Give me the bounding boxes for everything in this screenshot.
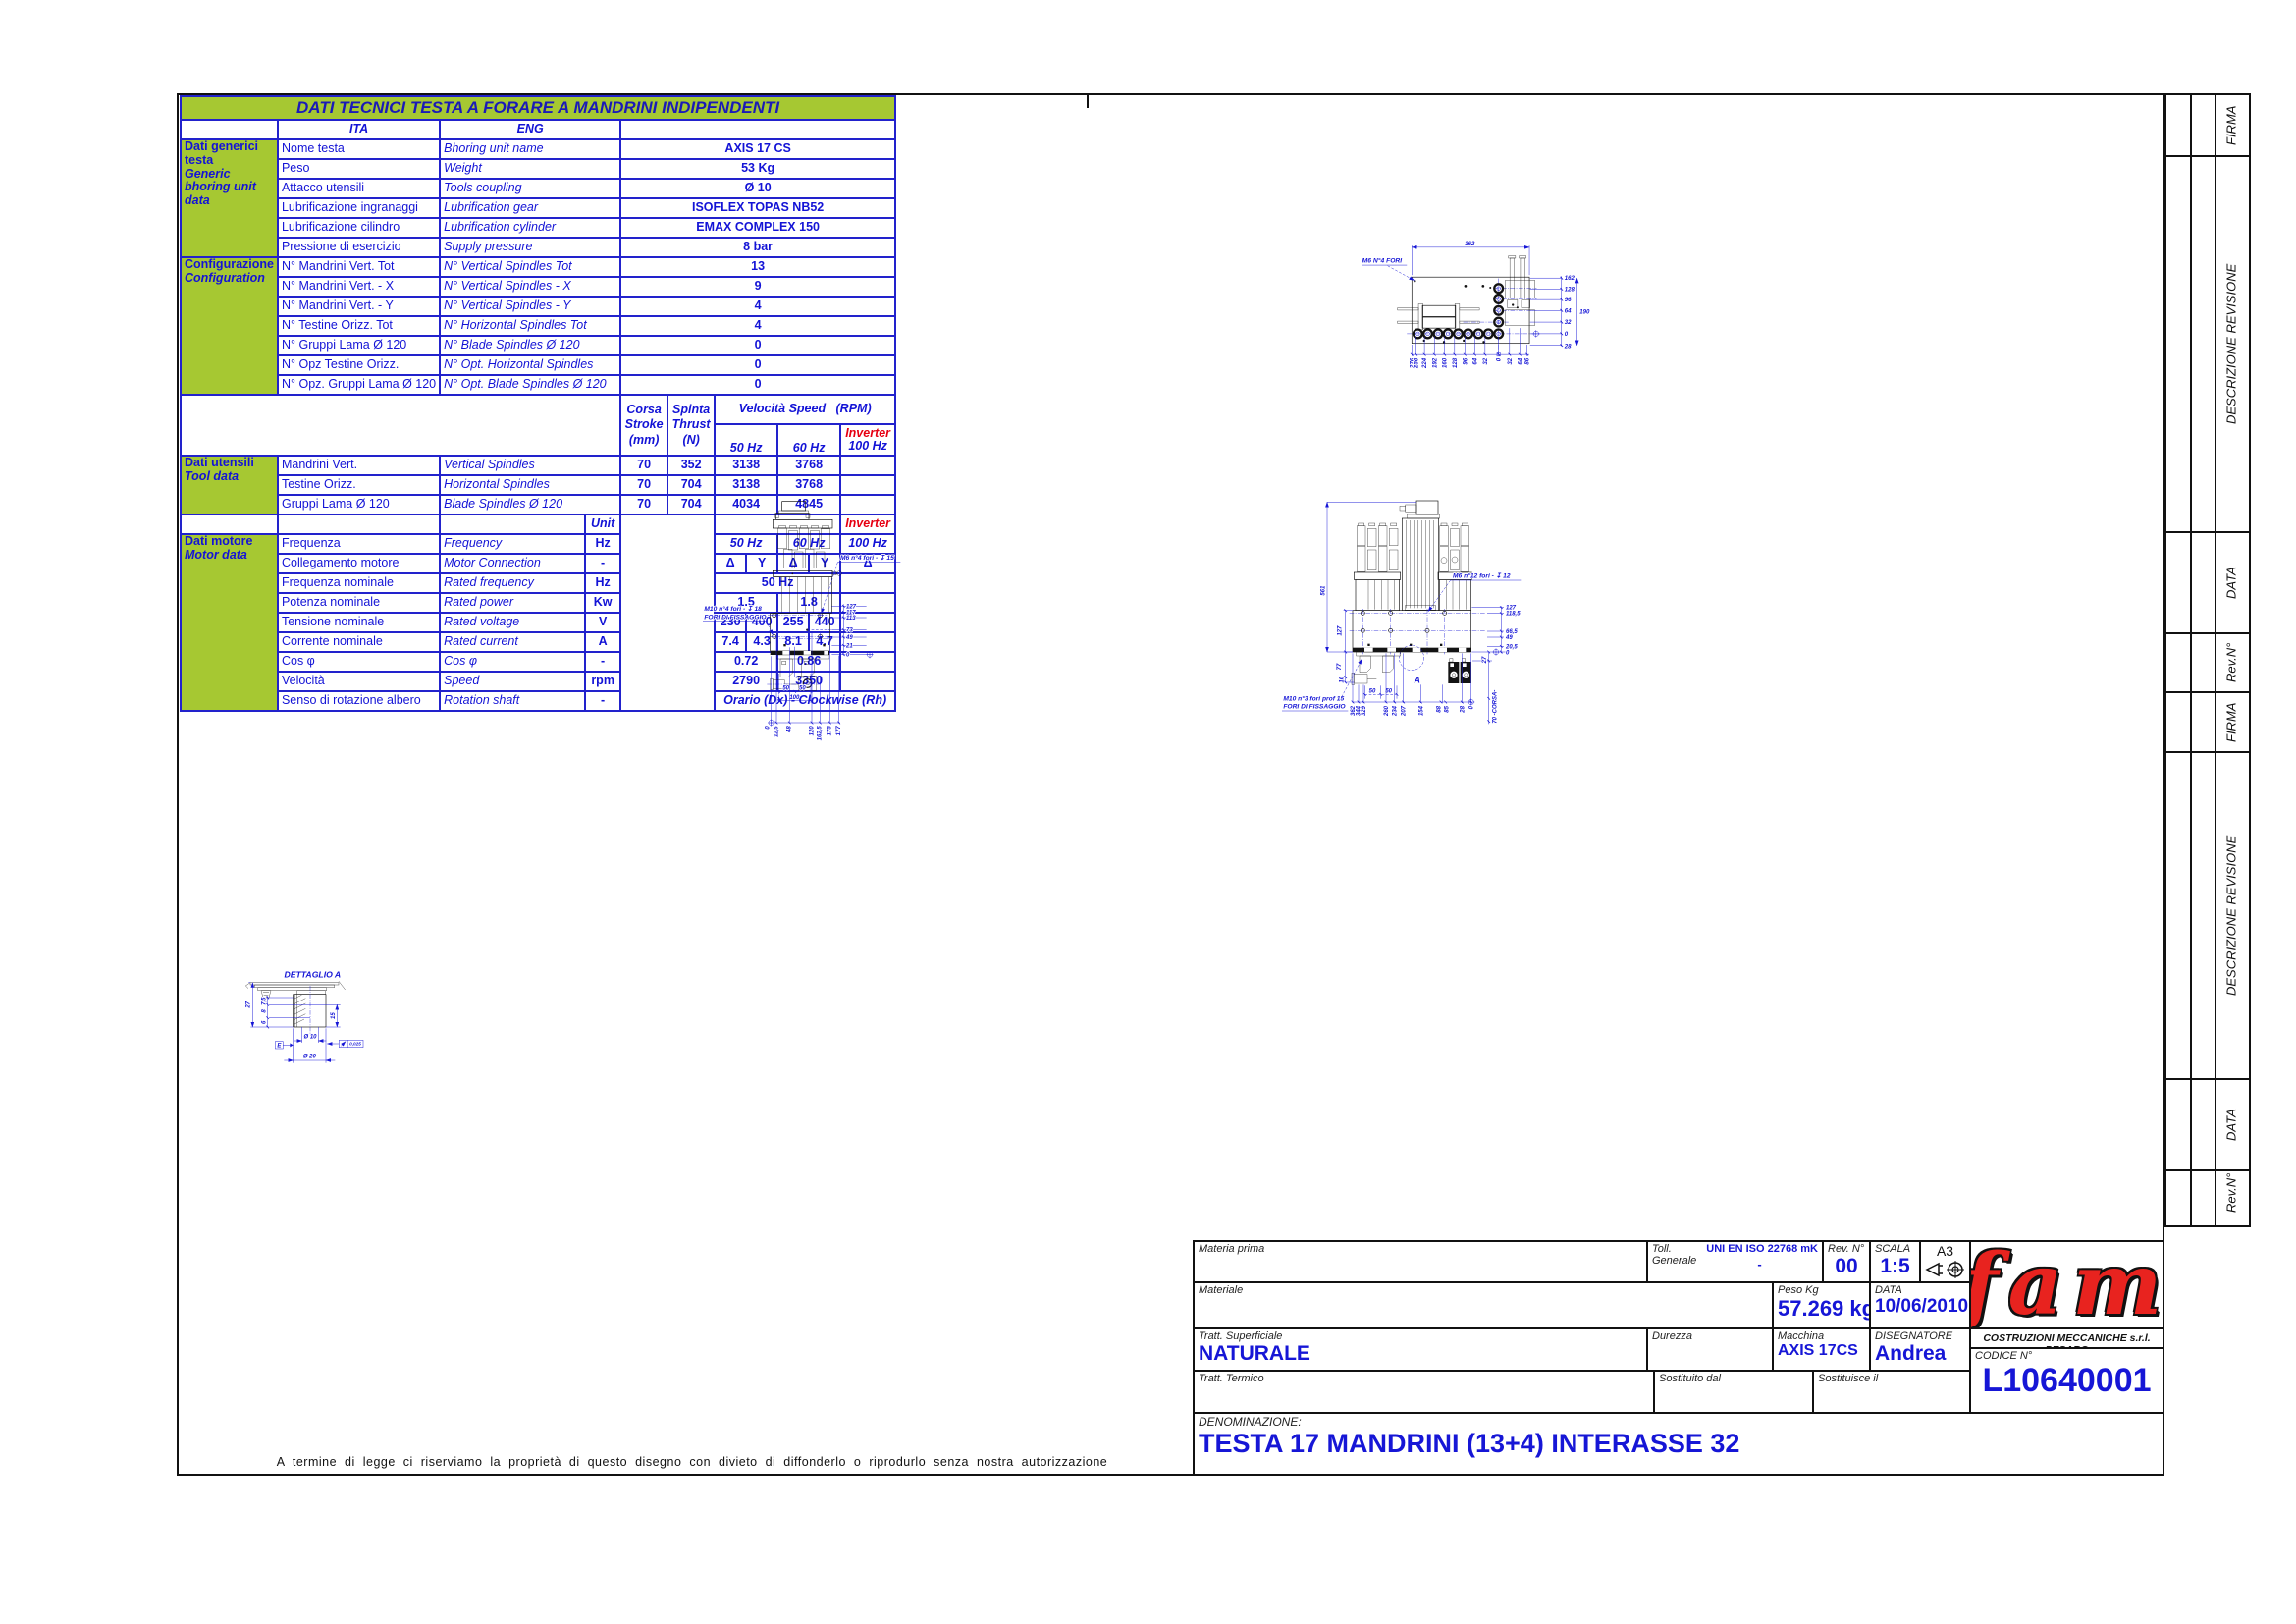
dim-dia10: Ø 10 [303,1035,317,1041]
cell [181,120,278,139]
runout-icon [341,1042,346,1047]
dim-190: 190 [1579,310,1590,316]
cell [181,514,278,534]
svg-text:234: 234 [1393,705,1399,717]
projection-symbol-icon [1925,1261,1968,1278]
right-spindle-cluster [1440,523,1469,571]
data-cell: DATA 10/06/2010 [1871,1283,1971,1329]
dim-50: 50 [799,686,806,692]
svg-text:160: 160 [1443,357,1449,368]
svg-text:32: 32 [1508,357,1514,364]
cell [840,456,895,475]
dim-561: 561 [1320,585,1326,596]
fissaggio-label: FORI DI FISSAGGIO [704,614,767,621]
unit-header: Unit [585,514,620,534]
m10-fori-label: M10 n°4 fori - ↧ 18 [704,605,762,613]
cell [440,514,585,534]
peso-cell: Peso Kg 57.269 kg [1774,1283,1871,1329]
svg-text:85: 85 [1444,705,1450,712]
dim: 64 [1565,308,1572,314]
front-view: 127 117 113 73 49 21 0 M6 n°4 fori - ↧ 1… [687,496,1335,1252]
svg-text:177: 177 [836,726,842,736]
dim: 128 [1565,287,1575,293]
dim: 49 [845,635,853,641]
row-label: Senso di rotazione albero [278,691,440,711]
side-lower-right-units [1448,659,1470,683]
dim: 127 [1338,625,1344,636]
company-cell: COSTRUZIONI MECCANICHE s.r.l. PESARO [1971,1329,2164,1349]
row-label: Corrente nominale [278,632,440,652]
svg-text:120: 120 [809,726,815,736]
fold-mark [1087,93,1089,108]
dim-corsa: 70 -CORSA- [1493,690,1499,724]
dim: 20,5 [1505,644,1518,650]
dim: 113 [846,616,856,622]
svg-text:256: 256 [1415,357,1420,369]
side-lower-mechanism [1352,652,1401,684]
svg-text:207: 207 [1402,705,1408,717]
disegnatore-cell: DISEGNATORE Andrea [1871,1329,1971,1372]
group-tool: Dati utensili Tool data [181,456,278,514]
strip-rev-1: Rev.N° [2166,634,2249,693]
col-eng: ENG [440,120,620,139]
fissaggio-label-2: FORI DI FISSAGGIO [1283,704,1346,711]
svg-text:162,5: 162,5 [818,726,824,741]
svg-text:64: 64 [1472,357,1478,364]
row-label: N° Testine Orizz. Tot [278,316,440,336]
tratt-termico-cell: Tratt. Termico [1195,1372,1655,1414]
row-label: Collegamento motore [278,554,440,573]
svg-text:128: 128 [1453,357,1459,368]
detail-view: DETTAGLIO A 27 7,5 8 [231,967,692,1306]
cell [840,475,895,495]
row-label: Mandrini Vert. [278,456,440,475]
row-label: Pressione di esercizio [278,238,440,257]
spindle-cluster [777,525,829,568]
washer-stack [245,981,345,998]
group-generic: Dati generici testa Generic bhoring unit… [181,139,278,257]
left-cylinders [1356,579,1400,610]
dim: 0 [1565,332,1569,338]
dim: 77 [1337,663,1343,670]
dim-27: 27 [1482,656,1488,664]
dim: 49 [1505,635,1513,641]
strip-data-1: DATA [2166,533,2249,634]
tratt-superficiale-cell: Tratt. Superficiale NATURALE [1195,1329,1648,1372]
dim: 8 [261,1009,267,1013]
dim: 6 [261,1020,267,1024]
strip-descrizione-2: DESCRIZIONE REVISIONE [2166,753,2249,1080]
svg-text:224: 224 [1422,357,1428,369]
dim-15: 15 [331,1012,337,1019]
codice-cell: CODICE N° L10640001 [1971,1349,2164,1414]
spinta-header: Spinta Thrust (N) [667,395,715,456]
dim: 118,5 [1506,612,1521,618]
dim-362: 362 [1465,242,1475,247]
motor-tower [1402,518,1438,611]
row-label: Peso [278,159,440,179]
tolleranze-cell: Toll.Generale UNI EN ISO 22768 mK - [1648,1242,1824,1283]
row-label: N° Mandrini Vert. - Y [278,297,440,316]
svg-text:0: 0 [766,726,772,730]
dim: 21 [845,643,853,649]
row-label: Lubrificazione ingranaggi [278,198,440,218]
row-label: N° Mandrini Vert. Tot [278,257,440,277]
fixing-holes [771,612,825,646]
drawing-sheet: FIRMA DESCRIZIONE REVISIONE DATA Rev.N° … [0,0,2296,1624]
row-label: Velocità [278,672,440,691]
row-label: Potenza nominale [278,593,440,613]
format-cell: A3 [1921,1242,1971,1283]
detail-letter: A [1414,675,1420,684]
row-label: Lubrificazione cilindro [278,218,440,238]
row-label: Testine Orizz. [278,475,440,495]
m10-3-label: M10 n°3 fori prof 15 [1283,694,1344,702]
row-label: N° Opz Testine Orizz. [278,355,440,375]
svg-text:154: 154 [1418,705,1424,716]
col-ita: ITA [278,120,440,139]
row-label: Nome testa [278,139,440,159]
dim: 32 [1565,320,1572,326]
row-label: N° Mandrini Vert. - X [278,277,440,297]
cell [181,395,620,456]
dim-27: 27 [246,1001,252,1008]
lower-mechanism [771,655,829,690]
durezza-cell: Durezza [1648,1329,1774,1372]
row-label: N° Gruppi Lama Ø 120 [278,336,440,355]
datum-triangle [290,1043,293,1047]
tolerance-value: 0,025 [349,1042,361,1047]
strip-rev-2: Rev.N° [2166,1171,2249,1214]
dim: 162 [1565,276,1575,282]
revision-strip: FIRMA DESCRIZIONE REVISIONE DATA Rev.N° … [2164,93,2251,1227]
side-view: A 561 127 77 [1276,491,2052,1252]
svg-text:192: 192 [1432,357,1438,368]
row-label: Cos φ [278,652,440,672]
group-motor: Dati motore Motor data [181,534,278,711]
legal-notice: A termine di legge ci riserviamo la prop… [236,1455,1148,1469]
m6-label: M6 N°4 FORI [1362,257,1403,265]
svg-text:260: 260 [1384,705,1390,717]
title-block: Materia prima Toll.Generale UNI EN ISO 2… [1193,1240,2164,1476]
left-spindle-cluster [1357,523,1398,571]
dim: 96 [1565,298,1572,303]
svg-text:48: 48 [787,726,793,733]
row-label: Tensione nominale [278,613,440,632]
strip-firma-2: FIRMA [2166,693,2249,753]
dim: 66,5 [1506,629,1518,635]
rev-cell: Rev. N° 00 [1824,1242,1871,1283]
svg-text:0: 0 [1469,705,1475,709]
svg-text:362: 362 [1351,705,1357,716]
dim: 28 [1564,344,1572,350]
dim: 0 [846,653,850,659]
inverter-header: Inverter 100 Hz [840,424,895,456]
dim: 16 [1340,676,1346,682]
strip-firma-1: FIRMA [2166,95,2249,157]
dim: 117 [846,610,856,616]
strip-data-2: DATA [2166,1080,2249,1171]
svg-text:32: 32 [1483,357,1489,364]
table-title: DATI TECNICI TESTA A FORARE A MANDRINI I… [181,96,895,120]
dim-50: 50 [1385,688,1392,694]
row-label: Frequenza [278,534,440,554]
top-view: 362 162 128 96 64 32 0 28 190 276 256 22… [1360,123,2052,535]
base-plate [771,613,830,651]
group-config: Configurazione Configuration [181,257,278,395]
row-label: Frequenza nominale [278,573,440,593]
dim-dia20: Ø 20 [303,1055,317,1060]
row-label: Gruppi Lama Ø 120 [278,495,440,514]
row-label: N° Opz. Gruppi Lama Ø 120 [278,375,440,395]
svg-text:88: 88 [1437,705,1443,712]
materia-prima-cell: Materia prima [1195,1242,1648,1283]
dim: 73 [846,628,853,634]
hz50-header: 50 Hz [715,424,777,456]
materiale-cell: Materiale [1195,1283,1774,1329]
m6-12-label: M6 n°12 fori - ↧ 12 [1453,572,1511,580]
top-bottom-dims: 276 256 224 192 160 128 96 64 32 0 32 64… [1410,357,1530,369]
m6-fori-label: M6 n°4 fori - ↧ 15 [840,554,894,562]
front-bottom-dims: 0 12,5 48 120 162,5 175 177 [766,726,842,741]
svg-text:64: 64 [1518,357,1523,364]
dim-50: 50 [782,686,789,692]
velocita-header: Velocità Speed (RPM) [715,395,895,424]
dim-50: 50 [1369,688,1376,694]
dim-100: 100 [789,695,800,701]
svg-text:28: 28 [1460,705,1466,713]
hz60-header: 60 Hz [777,424,840,456]
svg-text:329: 329 [1362,705,1367,716]
corsa-header: Corsa Stroke (mm) [620,395,667,456]
sostituisce-cell: Sostituisce il [1814,1372,1971,1414]
dim: 0 [1506,650,1510,656]
svg-text:175: 175 [828,726,833,736]
svg-text:96: 96 [1463,357,1468,364]
svg-text:0: 0 [1497,357,1503,361]
sostituito-cell: Sostituito dal [1655,1372,1814,1414]
scala-cell: SCALA 1:5 [1871,1242,1921,1283]
cell [278,514,440,534]
side-bottom-dims: 362 344 329 260 234 207 154 88 85 28 0 [1351,705,1475,717]
svg-text:86: 86 [1525,357,1531,364]
side-fixing-holes [1361,611,1446,646]
strip-descrizione-1: DESCRIZIONE REVISIONE [2166,157,2249,533]
fam-logo: fam [1971,1242,2164,1329]
svg-text:12,5: 12,5 [774,726,779,737]
dim: 127 [846,604,857,610]
dim: 127 [1506,606,1517,612]
denominazione-cell: DENOMINAZIONE: TESTA 17 MANDRINI (13+4) … [1195,1414,2164,1476]
row-label: Attacco utensili [278,179,440,198]
macchina-cell: Macchina AXIS 17CS [1774,1329,1871,1372]
datum-e: E [277,1043,282,1049]
cell [620,120,895,139]
detail-title: DETTAGLIO A [284,969,341,979]
dim: 7,5 [261,997,267,1005]
right-cylinders [1440,579,1471,610]
